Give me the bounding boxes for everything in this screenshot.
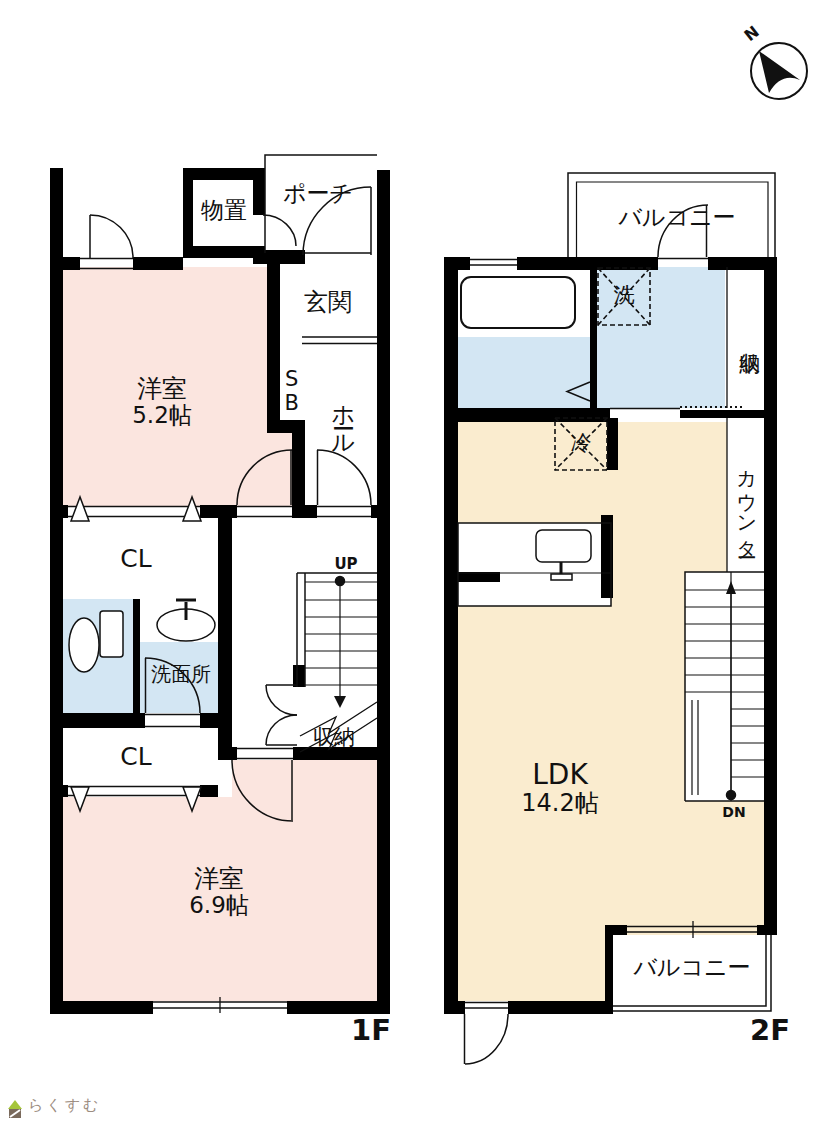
room-label-balcony-north: バルコニー <box>618 205 735 231</box>
window-line <box>470 260 517 266</box>
wall-segment <box>293 665 305 687</box>
threshold-line <box>145 715 200 727</box>
wall-segment <box>517 257 658 270</box>
wall-segment <box>292 433 305 507</box>
door-arc <box>465 1014 508 1064</box>
wall-segment <box>183 168 193 246</box>
site-logo: らくすむ <box>8 1096 101 1115</box>
threshold-line <box>237 749 293 759</box>
room-bedroom2 <box>232 760 377 1001</box>
room-label-storage-2f: 収納 <box>737 336 761 338</box>
wall-segment <box>607 418 618 470</box>
room-label-closet2: CL <box>120 743 151 771</box>
wall-segment <box>253 168 265 215</box>
wall-segment <box>444 257 470 270</box>
threshold-line <box>68 507 200 517</box>
stair-treads <box>305 582 377 685</box>
room-label-hall: ホール <box>330 389 356 447</box>
kitchen-counter <box>458 523 611 606</box>
wall-segment <box>218 747 237 760</box>
wall-segment <box>57 713 145 728</box>
threshold-line <box>317 507 371 517</box>
room-label-shoebox: SB <box>279 367 303 415</box>
washer-label: 洗 <box>614 284 635 308</box>
genkan-step <box>302 337 377 344</box>
room-name: LDK <box>521 759 598 790</box>
stair-start-dot <box>336 577 345 586</box>
wall-segment <box>444 257 458 1014</box>
logo-text: らくすむ <box>28 1096 101 1115</box>
room-size: 5.2帖 <box>132 403 192 429</box>
wall-segment <box>267 258 280 433</box>
sink-icon <box>157 600 215 641</box>
room-label-counter: カウンター <box>736 456 758 547</box>
room-label-genkan: 玄関 <box>304 289 352 316</box>
wall-segment <box>371 505 390 518</box>
wall-segment <box>444 408 610 422</box>
wall-segment <box>605 925 613 1008</box>
room-size: 6.9帖 <box>189 893 249 919</box>
compass-north-label: N <box>741 23 763 45</box>
wall-segment <box>708 257 777 270</box>
wall-segment <box>133 257 183 270</box>
wall-segment <box>764 257 777 935</box>
room-bath-floor <box>458 337 590 408</box>
wall-segment <box>590 267 597 408</box>
compass-icon <box>751 43 807 99</box>
wall-segment <box>680 410 764 418</box>
room-label-bedroom2: 洋室 6.9帖 <box>189 865 249 919</box>
wall-segment <box>200 785 218 797</box>
room-size: 14.2帖 <box>521 790 598 817</box>
door-arc <box>90 215 133 258</box>
room-label-closet1: CL <box>120 545 151 573</box>
room-label-bedroom1: 洋室 5.2帖 <box>132 375 192 429</box>
threshold-line <box>465 1003 508 1009</box>
floor2-label: 2F <box>750 1014 790 1046</box>
wall-segment <box>50 505 68 518</box>
floor1-label: 1F <box>351 1014 391 1046</box>
wall-segment <box>267 420 305 433</box>
bathtub-icon <box>461 277 575 328</box>
wall-segment <box>218 517 232 760</box>
wall-segment <box>508 1001 613 1014</box>
room-toilet <box>62 599 133 713</box>
room-label-porch: ポーチ <box>283 181 353 207</box>
fridge-label: 冷 <box>571 432 592 456</box>
door-arc <box>263 215 296 246</box>
arrow-down-icon <box>334 696 346 708</box>
wall-segment <box>292 505 317 518</box>
wall-segment <box>613 925 627 935</box>
stairs-down-label: DN <box>722 805 745 821</box>
room-bedroom1-ext <box>267 433 292 507</box>
room-name: 洋室 <box>189 865 249 893</box>
room-label-washroom: 洗面所 <box>151 663 211 685</box>
wall-segment <box>50 257 80 270</box>
wall-segment <box>133 599 140 713</box>
door-arc <box>317 450 371 505</box>
wall-segment <box>444 1001 465 1014</box>
wall-segment <box>601 515 613 598</box>
room-name: 洋室 <box>132 375 192 403</box>
wall-segment <box>458 572 500 582</box>
wall-segment <box>757 925 777 935</box>
threshold-line <box>68 787 200 796</box>
floorplan-canvas: 物置 ポーチ 玄関 SB ホール 洋室 5.2帖 CL 洗面所 CL 収納 UP… <box>0 0 825 1125</box>
room-label-balcony-south: バルコニー <box>633 955 750 981</box>
room-label-storage-1f: 収納 <box>313 726 355 750</box>
room-label-monooki: 物置 <box>201 198 247 224</box>
room-label-ldk: LDK 14.2帖 <box>521 759 598 817</box>
wall-segment <box>50 1001 153 1014</box>
threshold-line <box>237 507 292 517</box>
door-arc <box>266 685 297 715</box>
door-arc <box>266 715 297 745</box>
stairs-up-label: UP <box>334 556 357 573</box>
wall-segment <box>50 168 63 1014</box>
wall-segment <box>57 785 68 797</box>
wall-segment <box>200 713 218 728</box>
stairwell-2f <box>685 572 764 801</box>
wall-segment <box>377 170 390 1014</box>
